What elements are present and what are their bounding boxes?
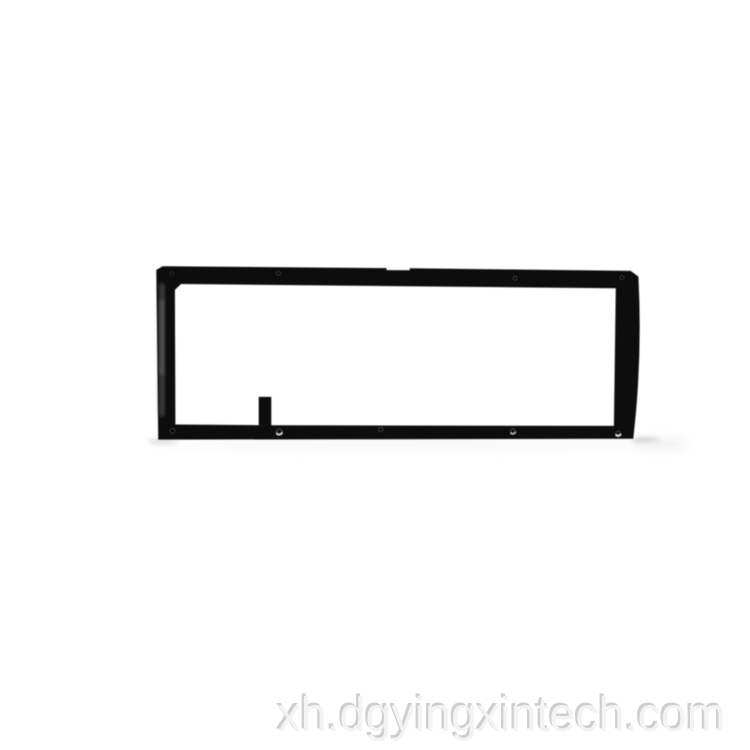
svg-text:xh.dgyingxintech.com: xh.dgyingxintech.com — [278, 688, 726, 742]
